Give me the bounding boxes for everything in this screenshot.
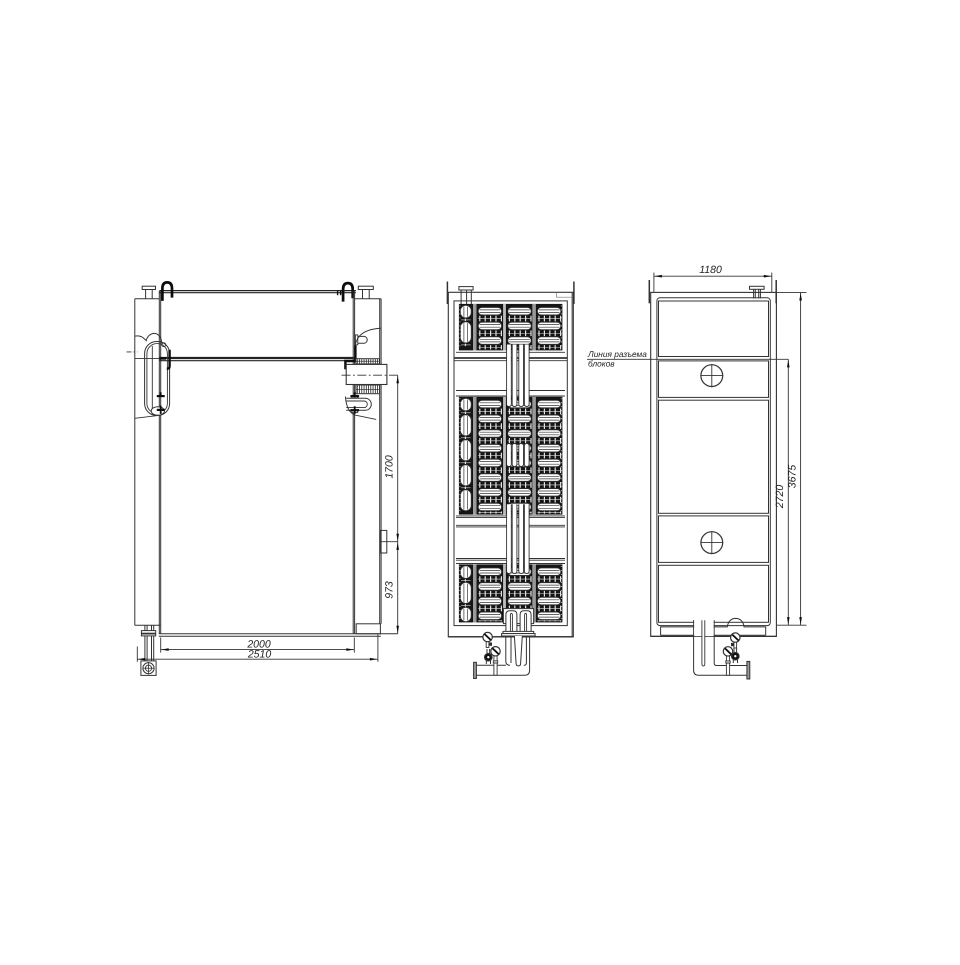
svg-text:1180: 1180	[699, 264, 722, 276]
svg-text:973: 973	[383, 581, 395, 599]
svg-text:2510: 2510	[247, 648, 272, 660]
svg-text:3675: 3675	[787, 465, 799, 489]
svg-text:1700: 1700	[383, 455, 395, 479]
svg-text:блоков: блоков	[588, 359, 615, 369]
svg-text:Линия разъема: Линия разъема	[587, 349, 647, 359]
svg-text:2720: 2720	[774, 485, 786, 510]
